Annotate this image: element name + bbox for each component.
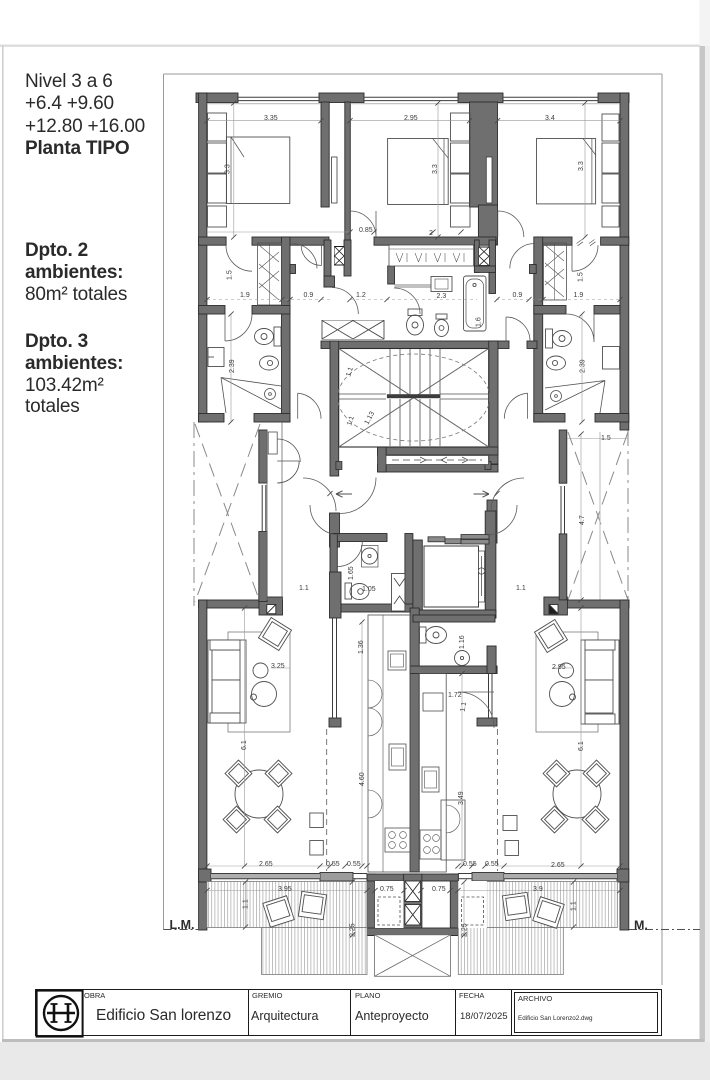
svg-text:3.95: 3.95 [278, 886, 292, 893]
svg-text:2.65: 2.65 [551, 862, 565, 869]
svg-text:3.35: 3.35 [264, 115, 278, 122]
svg-text:4.7: 4.7 [579, 515, 586, 525]
svg-text:6.1: 6.1 [578, 741, 585, 751]
svg-text:4.60: 4.60 [359, 772, 366, 786]
svg-text:2.95: 2.95 [552, 664, 566, 671]
svg-text:3.4: 3.4 [545, 115, 555, 122]
svg-text:2.25: 2.25 [462, 923, 469, 937]
svg-text:1.1: 1.1 [299, 585, 309, 592]
svg-text:3.3: 3.3 [578, 161, 585, 171]
svg-text:0.55: 0.55 [347, 861, 361, 868]
svg-text:1.1: 1.1 [516, 585, 526, 592]
svg-text:2.3: 2.3 [437, 293, 447, 300]
svg-text:2.65: 2.65 [259, 861, 273, 868]
svg-text:0.9: 0.9 [304, 292, 314, 299]
svg-text:1.65: 1.65 [348, 566, 355, 580]
svg-text:2: 2 [429, 230, 433, 237]
svg-text:3.3: 3.3 [432, 164, 439, 174]
svg-text:2.95: 2.95 [404, 115, 418, 122]
svg-text:L.M.: L.M. [170, 918, 195, 932]
svg-text:1.9: 1.9 [240, 292, 250, 299]
svg-text:3.25: 3.25 [271, 663, 285, 670]
svg-text:1.5: 1.5 [227, 270, 234, 280]
svg-text:1.05: 1.05 [362, 586, 376, 593]
svg-text:1.5: 1.5 [601, 435, 611, 442]
svg-text:3.49: 3.49 [458, 791, 465, 805]
svg-text:1.72: 1.72 [448, 692, 462, 699]
svg-text:0.55: 0.55 [463, 861, 477, 868]
svg-text:1.9: 1.9 [574, 292, 584, 299]
svg-text:1.36: 1.36 [358, 640, 365, 654]
svg-text:0.85: 0.85 [359, 227, 373, 234]
svg-text:0.75: 0.75 [380, 886, 394, 893]
svg-text:1.6: 1.6 [476, 317, 483, 327]
svg-text:0.75: 0.75 [432, 886, 446, 893]
svg-text:2.39: 2.39 [580, 359, 587, 373]
svg-text:0.55: 0.55 [485, 861, 499, 868]
svg-text:1.16: 1.16 [459, 635, 466, 649]
svg-text:0.9: 0.9 [513, 292, 523, 299]
svg-text:6.1: 6.1 [241, 740, 248, 750]
svg-text:3.9: 3.9 [533, 886, 543, 893]
svg-text:M.: M. [634, 919, 648, 933]
svg-text:1.5: 1.5 [578, 272, 585, 282]
svg-text:1.1: 1.1 [571, 901, 578, 911]
svg-text:1.1: 1.1 [243, 899, 250, 909]
svg-text:0.55: 0.55 [326, 861, 340, 868]
svg-text:3.3: 3.3 [225, 164, 232, 174]
svg-text:2.39: 2.39 [229, 359, 236, 373]
svg-text:1.2: 1.2 [356, 292, 366, 299]
svg-text:2.25: 2.25 [350, 923, 357, 937]
svg-text:1.1: 1.1 [460, 701, 469, 712]
